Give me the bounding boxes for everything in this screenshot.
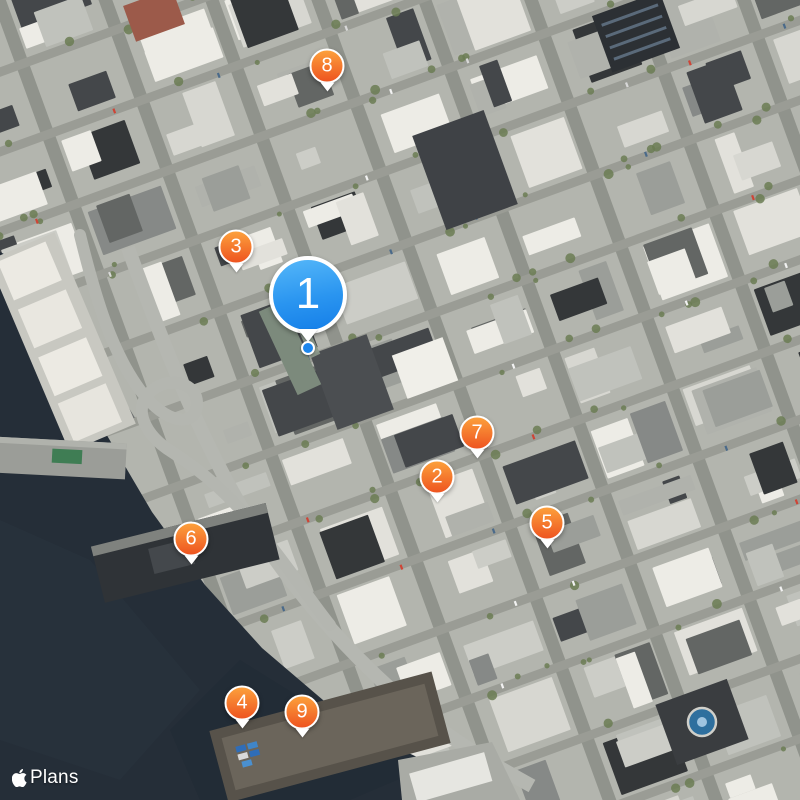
map-pin-6[interactable]: 6: [174, 522, 209, 557]
pin-label: 1: [296, 272, 320, 316]
brand-name: Plans: [30, 767, 79, 789]
pin-tail: [295, 729, 309, 738]
maps-app-viewport: 123456789 Plans: [0, 0, 800, 800]
pin-label: 5: [541, 512, 552, 532]
map-pin-5[interactable]: 5: [530, 506, 565, 541]
pin-tail: [229, 264, 243, 273]
pin-label: 4: [236, 692, 247, 712]
pin-label: 8: [321, 55, 332, 75]
map-pin-9[interactable]: 9: [285, 695, 320, 730]
pin-label: 9: [296, 701, 307, 721]
map-pin-2[interactable]: 2: [420, 460, 455, 495]
map-pin-7[interactable]: 7: [460, 416, 495, 451]
pin-anchor-dot: [301, 341, 315, 355]
map-pin-4[interactable]: 4: [225, 686, 260, 721]
pin-tail: [430, 494, 444, 503]
map-pin-1[interactable]: 1: [269, 256, 347, 334]
pin-label: 3: [230, 236, 241, 256]
pin-tail: [184, 556, 198, 565]
apple-logo-icon: [12, 769, 27, 787]
map-pin-layer: 123456789: [0, 0, 800, 800]
map-pin-3[interactable]: 3: [219, 230, 254, 265]
pin-label: 2: [431, 466, 442, 486]
pin-label: 6: [185, 528, 196, 548]
pin-tail: [320, 83, 334, 92]
pin-tail: [540, 540, 554, 549]
pin-tail: [470, 450, 484, 459]
map-pin-8[interactable]: 8: [310, 49, 345, 84]
apple-maps-logo: Plans: [12, 767, 79, 789]
pin-tail: [235, 720, 249, 729]
pin-label: 7: [471, 422, 482, 442]
